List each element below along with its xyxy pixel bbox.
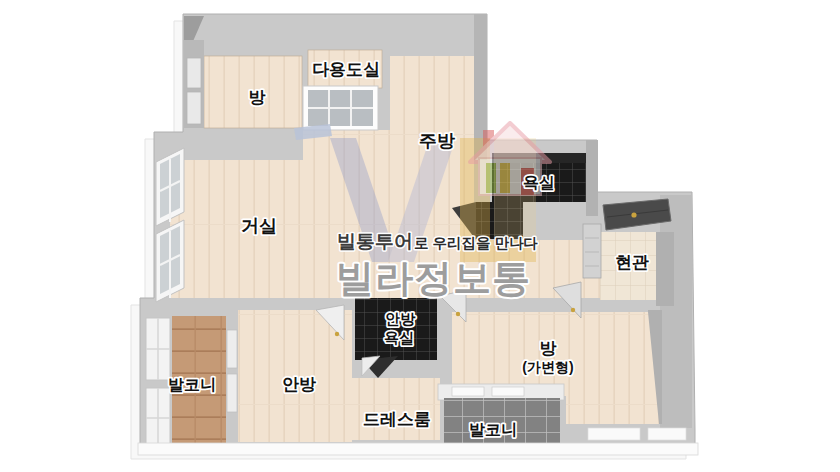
room-label-flex-line1: 방	[540, 339, 557, 358]
floor-plan-image: 빌통투어 로 우리집을 만나다 빌라정보통 방 다용도실 주방 욕실 현관 거실…	[0, 0, 840, 472]
door-handle	[335, 332, 339, 336]
room-label-kitchen: 주방	[419, 131, 455, 151]
window-panel	[227, 330, 237, 368]
sliding-panel	[583, 224, 601, 278]
utility-window	[303, 86, 378, 130]
room-label-bedroom-top: 방	[249, 88, 266, 107]
door-handle	[456, 312, 460, 316]
balcony-bottom-structure	[438, 384, 564, 452]
room-label-balcony-bottom: 발코니	[469, 421, 517, 438]
room-label-master-bath-line1: 안방	[385, 310, 416, 327]
room-label-flex-line2: (가변형)	[522, 359, 573, 375]
door-handle	[631, 212, 636, 217]
outer-wall-top-band	[138, 443, 698, 455]
wall-face	[586, 140, 598, 216]
closet-door	[187, 58, 201, 88]
room-floor-dressroom	[352, 378, 440, 440]
watermark-tagline-rest: 로 우리집을 만나다	[414, 235, 538, 251]
room-floor-kitchen	[390, 56, 474, 132]
room-label-master-bath-line2: 욕실	[384, 329, 414, 346]
window-sill	[588, 428, 640, 440]
watermark-tagline-brand: 빌통투어	[337, 231, 413, 252]
wall-face	[656, 232, 674, 306]
room-label-utility: 다용도실	[312, 60, 380, 79]
door-handle	[571, 308, 575, 312]
closet-door	[187, 92, 201, 124]
window-panel	[227, 374, 237, 412]
room-label-bathroom: 욕실	[523, 174, 555, 191]
watermark-brand-name: 빌라정보통	[336, 257, 531, 299]
room-label-master: 안방	[282, 375, 316, 394]
balcony-window	[146, 318, 170, 380]
floor-plan-screenshot: 빌통투어 로 우리집을 만나다 빌라정보통 방 다용도실 주방 욕실 현관 거실…	[0, 0, 840, 472]
wall-face	[660, 195, 692, 428]
balcony-window	[146, 388, 170, 448]
room-label-dressroom: 드레스룸	[363, 410, 431, 429]
room-label-entrance: 현관	[615, 253, 649, 272]
room-label-living: 거실	[241, 216, 277, 236]
window-sill	[648, 428, 686, 440]
living-window	[156, 220, 184, 302]
room-label-balcony-left: 발코니	[168, 376, 216, 393]
living-window	[156, 148, 184, 226]
